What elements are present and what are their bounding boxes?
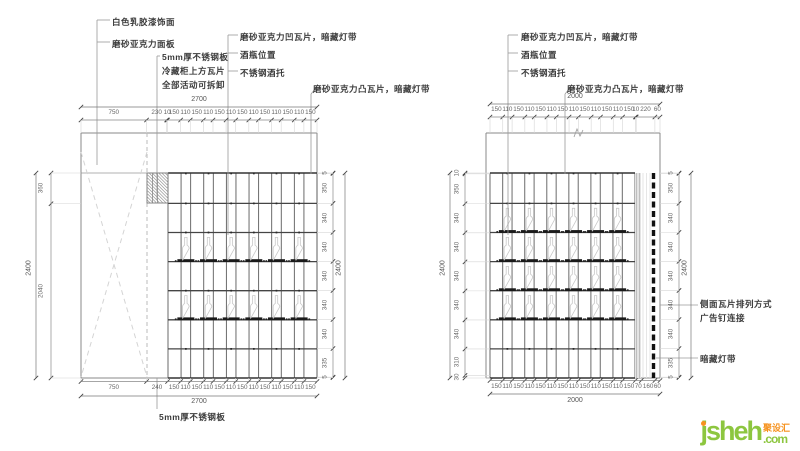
logo-side: 聚设汇 .com — [763, 421, 790, 445]
dim-overall-right-bottom: 2000 — [490, 397, 660, 404]
dim-label: 335 — [668, 358, 675, 369]
dim-label: 350 — [322, 183, 329, 194]
callout-steel-plate: 5mm厚不锈钢板 — [162, 51, 228, 63]
dim-label: 150 — [192, 384, 203, 391]
dim-label: 350 — [668, 183, 675, 194]
dim-label: 150 — [580, 106, 591, 113]
dim-label: 340 — [454, 213, 461, 224]
dim-label: 10 — [632, 106, 639, 113]
callout-ad-nail: 广告钉连接 — [700, 312, 745, 324]
callout-wine-holder: 不锈钢酒托 — [240, 67, 285, 79]
dim-label: 110 — [294, 384, 304, 391]
dim-label: 750 — [109, 109, 120, 116]
dim-label: 340 — [454, 242, 461, 253]
dim-label: 30 — [454, 373, 461, 380]
dim-label: 350 — [454, 184, 461, 195]
dim-label: 150 — [169, 384, 180, 391]
dim-label: 150 — [624, 383, 635, 390]
dim-label: 150 — [305, 109, 316, 116]
dim-overall-left-height-r: 2400 — [336, 260, 343, 276]
dim-overall-left-bottom: 2700 — [81, 398, 317, 405]
dim-label: 110 — [524, 383, 534, 390]
dim-label: 340 — [322, 213, 329, 224]
dim-label: 110 — [591, 383, 601, 390]
dim-label: 340 — [454, 329, 461, 340]
dim-label: 110 — [502, 106, 512, 113]
dim-label: 110 — [249, 109, 259, 116]
dim-label: 150 — [491, 383, 502, 390]
dim-label: 110 — [203, 384, 213, 391]
callout-bottle-position: 酒瓶位置 — [240, 49, 276, 61]
dim-label: 150 — [513, 383, 524, 390]
dim-label: 340 — [668, 271, 675, 282]
dim-label: 150 — [260, 109, 271, 116]
dim-label: 110 — [226, 384, 236, 391]
jsheh-watermark-logo: jsheh 聚设汇 .com — [700, 419, 790, 445]
dim-label: 150 — [214, 384, 225, 391]
dim-label: 150 — [282, 384, 293, 391]
dim-label: 5 — [668, 376, 675, 380]
dim-label: 150 — [237, 109, 248, 116]
dim-overall-left-height-l: 2400 — [26, 260, 33, 276]
dim-label: 2040 — [38, 284, 45, 298]
dim-overall-right-height-l: 2400 — [440, 260, 447, 276]
dim-label: 110 — [613, 106, 623, 113]
dim-label: 110 — [249, 384, 259, 391]
callout-convex-tile: 磨砂亚克力凸瓦片，暗藏灯带 — [313, 83, 430, 95]
dim-label: 340 — [322, 329, 329, 340]
dim-label: 60 — [654, 383, 661, 390]
dim-label: 70 — [635, 383, 642, 390]
dim-label: 340 — [668, 300, 675, 311]
dim-label: 340 — [454, 300, 461, 311]
dim-label: 110 — [294, 109, 304, 116]
dim-label: 10 — [454, 170, 461, 177]
callout-paint-finish: 白色乳胶漆饰面 — [112, 16, 175, 28]
dim-label: 150 — [169, 109, 180, 116]
dim-label: 340 — [668, 329, 675, 340]
dim-label: 150 — [535, 106, 546, 113]
dim-label: 150 — [214, 109, 225, 116]
dim-label: 5 — [322, 171, 329, 175]
dim-label: 110 — [547, 106, 557, 113]
dim-label: 110 — [569, 106, 579, 113]
dim-label: 5 — [322, 376, 329, 380]
dim-label: 110 — [613, 383, 623, 390]
dim-label: 110 — [591, 106, 601, 113]
callout-concave-tile-right: 磨砂亚克力凹瓦片，暗藏灯带 — [521, 31, 638, 43]
dim-label: 150 — [580, 383, 591, 390]
dim-label: 110 — [226, 109, 236, 116]
dim-label: 340 — [322, 242, 329, 253]
dim-label: 340 — [454, 271, 461, 282]
callout-removable: 全部活动可拆卸 — [162, 79, 225, 91]
dim-label: 110 — [180, 109, 190, 116]
dim-label: 150 — [602, 106, 613, 113]
dim-overall-right-height-r: 2400 — [682, 260, 689, 276]
dim-overall-right-top: 2000 — [490, 93, 660, 100]
dim-label: 150 — [557, 106, 568, 113]
dim-label: 340 — [668, 213, 675, 224]
dim-label: 340 — [322, 300, 329, 311]
dim-label: 110 — [180, 384, 190, 391]
logo-text: jsheh — [700, 419, 761, 443]
dim-label: 110 — [203, 109, 213, 116]
cad-wine-wall-elevation-sheet: 白色乳胶漆饰面 磨砂亚克力面板 5mm厚不锈钢板 冷藏柜上方瓦片 全部活动可拆卸… — [0, 0, 800, 451]
dim-label: 150 — [260, 384, 271, 391]
dim-label: 340 — [322, 271, 329, 282]
dim-label: 110 — [547, 383, 557, 390]
dim-label: 240 — [152, 384, 163, 391]
dim-label: 750 — [109, 384, 120, 391]
dim-label: 110 — [271, 109, 281, 116]
callout-hidden-light-strip: 暗藏灯带 — [700, 353, 736, 365]
dim-label: 150 — [192, 109, 203, 116]
dim-label: 150 — [513, 106, 524, 113]
dim-label: 60 — [654, 106, 661, 113]
dim-label: 110 — [502, 383, 512, 390]
logo-tld: .com — [763, 434, 790, 445]
dim-label: 160 — [643, 383, 654, 390]
logo-orange-dot-icon — [701, 421, 706, 426]
dim-label: 110 — [524, 106, 534, 113]
dim-label: 220 — [640, 106, 651, 113]
dim-label: 230 — [151, 109, 162, 116]
dim-label: 150 — [557, 383, 568, 390]
callout-fridge-tiles: 冷藏柜上方瓦片 — [162, 65, 225, 77]
dim-label: 150 — [237, 384, 248, 391]
dim-label: 110 — [271, 384, 281, 391]
dim-label: 150 — [305, 384, 316, 391]
dim-overall-left-top: 2700 — [81, 96, 317, 103]
dim-label: 150 — [282, 109, 293, 116]
callout-bottle-position-right: 酒瓶位置 — [521, 49, 557, 61]
callout-side-tile-layout: 侧面瓦片排列方式 — [700, 298, 772, 310]
callout-wine-holder-right: 不锈钢酒托 — [521, 67, 566, 79]
dim-label: 360 — [38, 183, 45, 194]
callout-acrylic-panel: 磨砂亚克力面板 — [112, 38, 175, 50]
dim-label: 310 — [454, 357, 461, 368]
dim-label: 340 — [668, 242, 675, 253]
dim-label: 150 — [535, 383, 546, 390]
dim-label: 150 — [491, 106, 502, 113]
dim-label: 5 — [668, 171, 675, 175]
elevation-linework — [0, 0, 800, 451]
dim-label: 150 — [602, 383, 613, 390]
dim-label: 335 — [322, 358, 329, 369]
callout-steel-plate-bottom: 5mm厚不锈钢板 — [159, 411, 225, 423]
dim-label: 110 — [569, 383, 579, 390]
callout-concave-tile: 磨砂亚克力凹瓦片，暗藏灯带 — [240, 31, 357, 43]
